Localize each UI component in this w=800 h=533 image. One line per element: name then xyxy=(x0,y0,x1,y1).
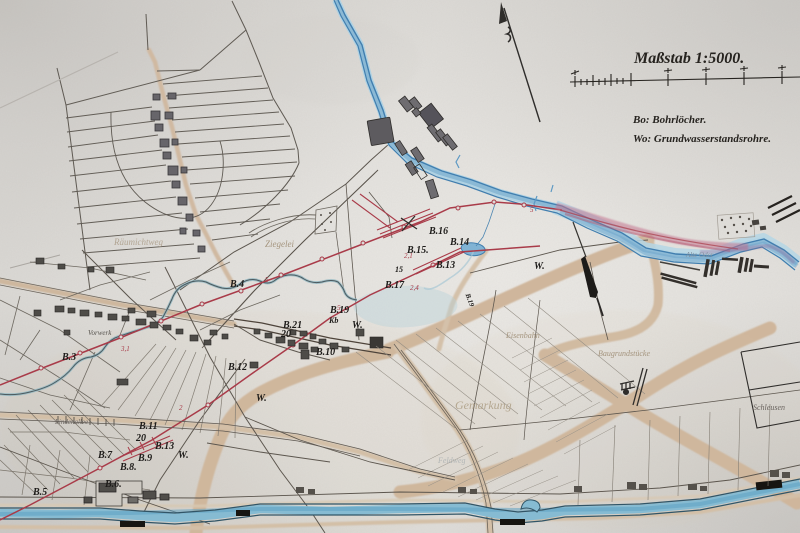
svg-text:2,1: 2,1 xyxy=(404,252,413,260)
svg-text:B.3: B.3 xyxy=(61,352,76,363)
svg-text:Vorwerk: Vorwerk xyxy=(88,329,112,337)
svg-text:20: 20 xyxy=(135,433,146,444)
svg-text:20: 20 xyxy=(280,329,291,340)
svg-text:Alte Oder: Alte Oder xyxy=(685,251,714,259)
svg-text:Ziegelei: Ziegelei xyxy=(265,239,294,249)
svg-text:Eisenbahn: Eisenbahn xyxy=(505,331,540,340)
svg-text:B.4: B.4 xyxy=(229,279,244,290)
svg-text:B.13: B.13 xyxy=(154,441,174,452)
svg-text:Wo: Grundwasserstandsrohre.: Wo: Grundwasserstandsrohre. xyxy=(633,133,771,145)
svg-text:Feldweg: Feldweg xyxy=(437,456,466,465)
svg-text:B.8.: B.8. xyxy=(119,462,137,473)
svg-text:5: 5 xyxy=(265,276,269,284)
svg-text:B.5: B.5 xyxy=(32,487,47,498)
svg-text:B.7: B.7 xyxy=(97,450,113,461)
svg-text:B.17: B.17 xyxy=(384,280,405,291)
svg-text:5: 5 xyxy=(337,304,341,312)
svg-text:Schleusen: Schleusen xyxy=(753,403,785,412)
svg-text:W.: W. xyxy=(352,320,363,331)
svg-text:W.: W. xyxy=(534,261,545,272)
svg-text:B.13: B.13 xyxy=(435,260,455,271)
svg-text:Bo: Bohrlöcher.: Bo: Bohrlöcher. xyxy=(632,114,706,126)
svg-text:B.12: B.12 xyxy=(227,362,247,373)
svg-text:B.9: B.9 xyxy=(137,453,152,464)
svg-text:2: 2 xyxy=(179,404,183,412)
svg-text:Kb: Kb xyxy=(328,316,338,325)
svg-text:B.11: B.11 xyxy=(138,421,158,432)
svg-text:Gemarkung: Gemarkung xyxy=(455,398,512,412)
svg-text:5: 5 xyxy=(530,206,534,214)
svg-text:Lindenallee: Lindenallee xyxy=(54,418,88,426)
svg-text:B.16: B.16 xyxy=(428,226,448,237)
svg-text:B.10: B.10 xyxy=(315,347,335,358)
svg-text:Maßstab 1:5000.: Maßstab 1:5000. xyxy=(633,50,744,67)
svg-text:Räumichtweg: Räumichtweg xyxy=(113,237,163,247)
svg-text:W.: W. xyxy=(256,393,267,404)
svg-text:B.6.: B.6. xyxy=(104,479,122,490)
svg-text:W.: W. xyxy=(178,450,189,461)
svg-text:Baugrundstücke: Baugrundstücke xyxy=(598,349,650,358)
svg-text:B.14: B.14 xyxy=(449,237,469,248)
svg-text:3,1: 3,1 xyxy=(120,345,130,353)
svg-text:15: 15 xyxy=(395,265,403,274)
svg-text:2,4: 2,4 xyxy=(410,284,419,292)
